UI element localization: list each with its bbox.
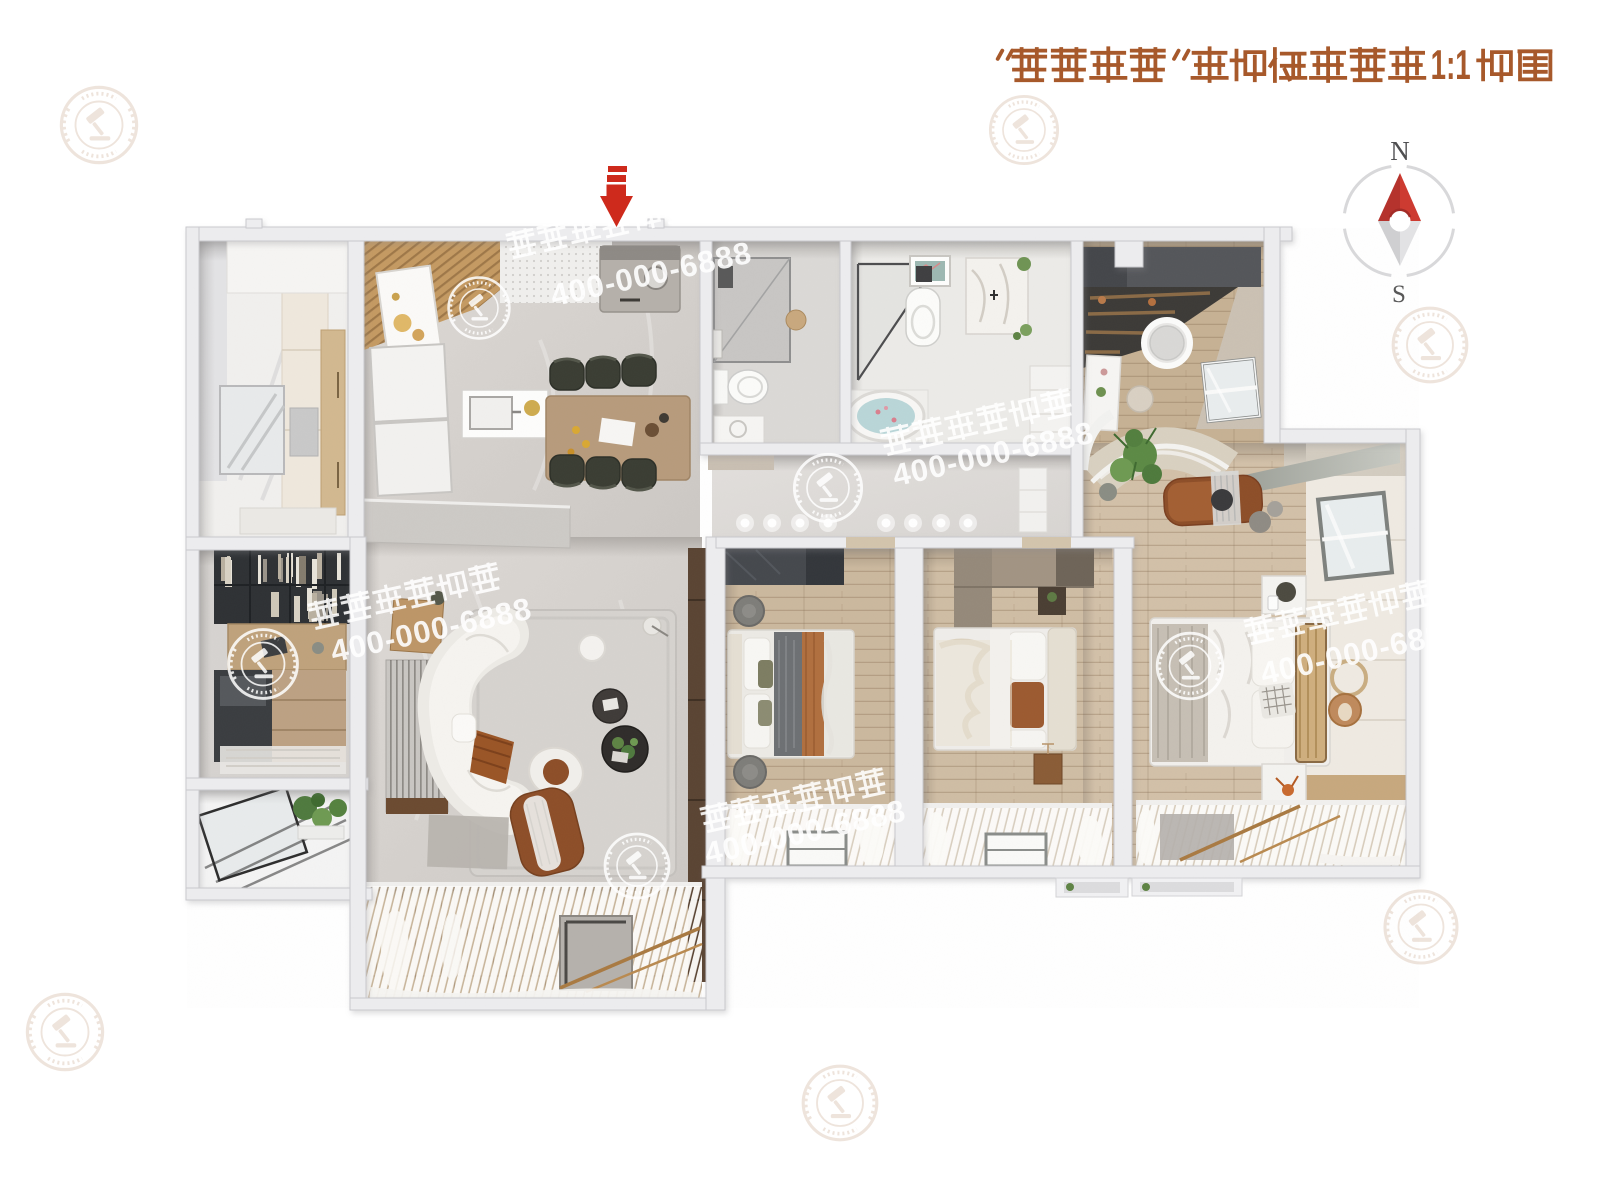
svg-text:1:1: 1:1 [1431,41,1471,88]
svg-text:S: S [1392,281,1406,308]
svg-text:N: N [1390,136,1410,166]
